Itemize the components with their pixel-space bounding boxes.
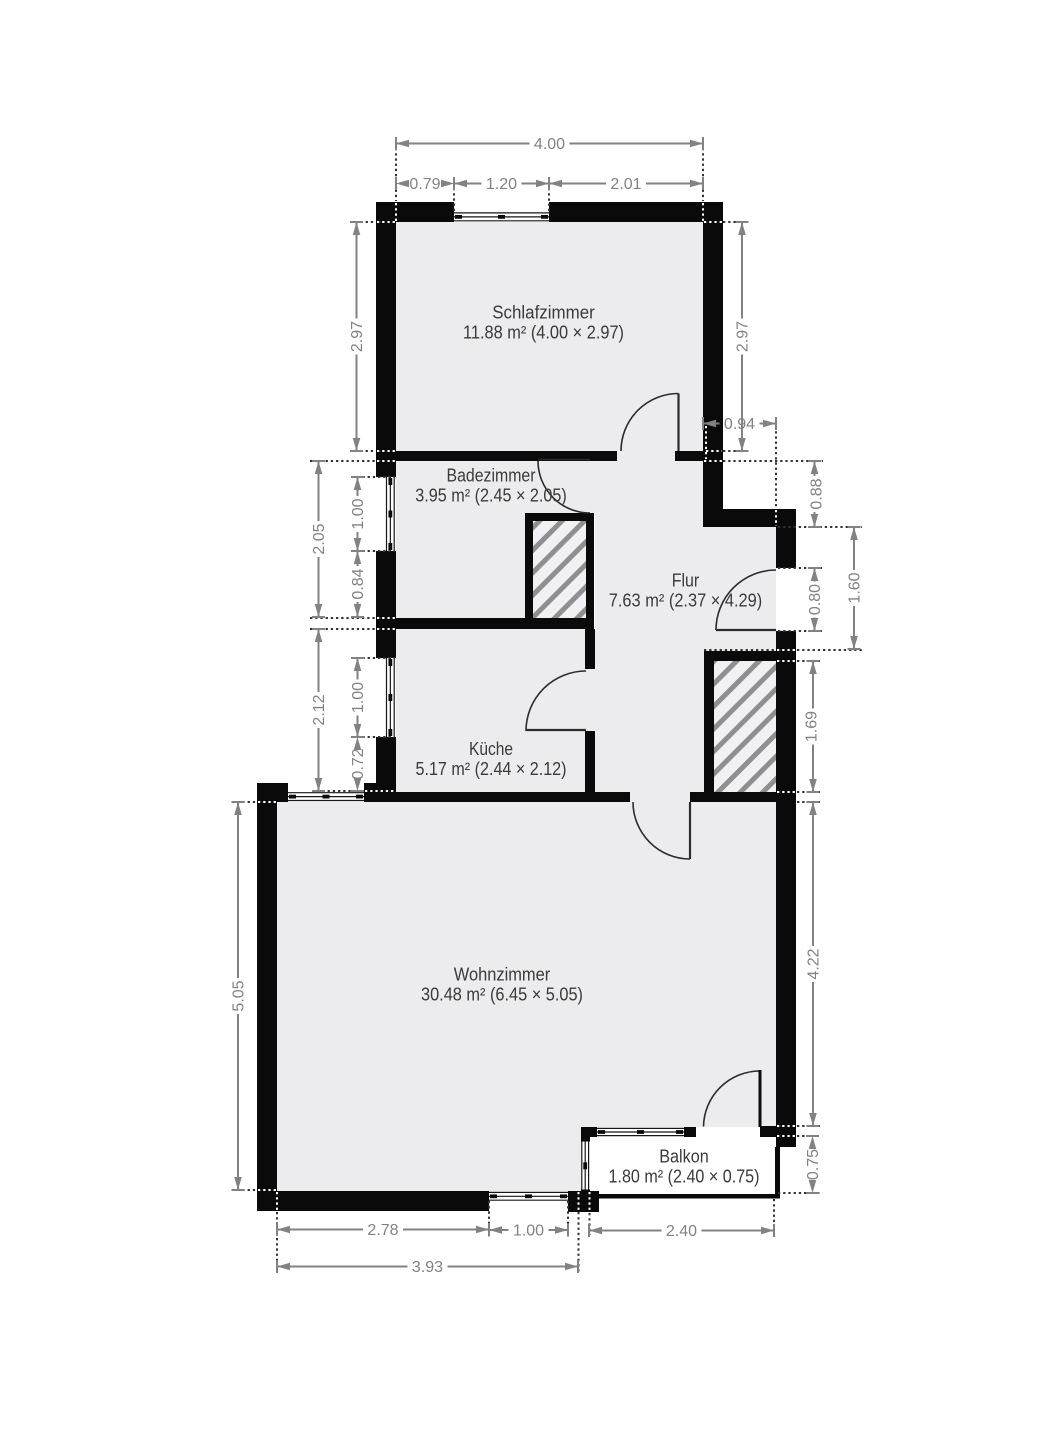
svg-text:2.40: 2.40 xyxy=(666,1223,697,1240)
svg-text:0.84: 0.84 xyxy=(350,568,367,599)
svg-text:1.00: 1.00 xyxy=(350,682,367,713)
svg-text:7.63 m² (2.37 × 4.29): 7.63 m² (2.37 × 4.29) xyxy=(609,591,763,611)
svg-text:1.00: 1.00 xyxy=(513,1223,544,1240)
svg-text:Küche: Küche xyxy=(469,739,513,759)
svg-text:1.00: 1.00 xyxy=(350,498,367,529)
svg-text:1.80 m² (2.40 × 0.75): 1.80 m² (2.40 × 0.75) xyxy=(609,1167,760,1187)
svg-text:0.75: 0.75 xyxy=(805,1149,822,1180)
svg-text:2.12: 2.12 xyxy=(311,694,328,725)
svg-text:1.20: 1.20 xyxy=(486,176,517,193)
svg-text:Schlafzimmer: Schlafzimmer xyxy=(492,303,595,323)
svg-text:11.88 m² (4.00 × 2.97): 11.88 m² (4.00 × 2.97) xyxy=(463,323,624,343)
svg-text:0.79: 0.79 xyxy=(409,176,440,193)
svg-text:5.17 m² (2.44 × 2.12): 5.17 m² (2.44 × 2.12) xyxy=(416,759,567,779)
svg-text:4.00: 4.00 xyxy=(534,136,565,153)
svg-text:3.95 m² (2.45 × 2.05): 3.95 m² (2.45 × 2.05) xyxy=(415,486,567,506)
svg-text:0.80: 0.80 xyxy=(807,584,824,615)
svg-text:4.22: 4.22 xyxy=(806,948,823,979)
svg-text:1.60: 1.60 xyxy=(847,572,864,603)
svg-text:0.94: 0.94 xyxy=(724,416,755,433)
svg-text:Badezimmer: Badezimmer xyxy=(447,466,536,486)
svg-text:30.48 m² (6.45 × 5.05): 30.48 m² (6.45 × 5.05) xyxy=(421,985,583,1005)
svg-text:Flur: Flur xyxy=(672,571,700,591)
svg-text:1.69: 1.69 xyxy=(804,711,821,742)
svg-text:Wohnzimmer: Wohnzimmer xyxy=(454,965,551,985)
svg-text:0.72: 0.72 xyxy=(350,748,367,779)
svg-text:5.05: 5.05 xyxy=(231,980,248,1011)
svg-text:0.88: 0.88 xyxy=(809,478,826,509)
svg-text:2.05: 2.05 xyxy=(311,523,328,554)
svg-text:2.97: 2.97 xyxy=(735,321,752,352)
svg-text:2.01: 2.01 xyxy=(610,176,641,193)
svg-text:2.97: 2.97 xyxy=(349,321,366,352)
svg-text:3.93: 3.93 xyxy=(412,1259,443,1276)
svg-text:Balkon: Balkon xyxy=(659,1147,709,1167)
svg-text:2.78: 2.78 xyxy=(367,1222,398,1239)
